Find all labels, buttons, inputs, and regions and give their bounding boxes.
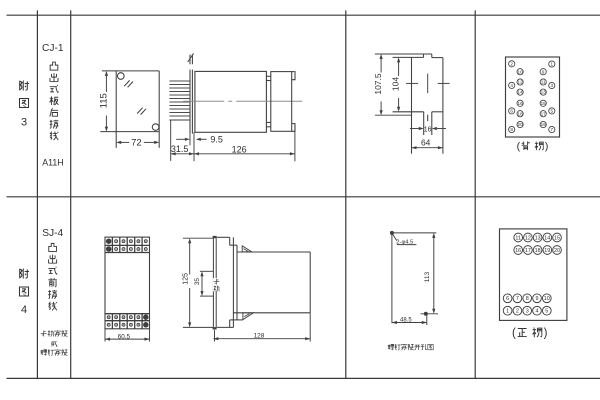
svg-text:CJ-1: CJ-1 — [42, 43, 64, 54]
svg-text:A11H: A11H — [42, 158, 63, 168]
svg-text:15: 15 — [541, 101, 547, 106]
svg-text:6: 6 — [506, 296, 509, 302]
svg-text:64: 64 — [421, 138, 431, 148]
svg-text:35: 35 — [194, 278, 201, 286]
svg-text:9: 9 — [542, 69, 545, 74]
svg-text:16: 16 — [518, 101, 524, 106]
svg-text:13: 13 — [541, 90, 547, 95]
svg-text:7: 7 — [516, 296, 519, 302]
svg-text:2: 2 — [516, 309, 519, 315]
svg-text:): ) — [544, 328, 548, 340]
svg-text:15: 15 — [554, 235, 560, 241]
svg-text:): ) — [545, 141, 549, 153]
svg-text:5: 5 — [551, 109, 554, 114]
svg-text:10: 10 — [544, 296, 550, 302]
svg-text:5: 5 — [545, 309, 548, 315]
svg-text:18: 18 — [535, 248, 541, 254]
svg-text:9.5: 9.5 — [210, 134, 223, 144]
svg-text:12: 12 — [518, 80, 524, 85]
svg-text:17: 17 — [525, 248, 531, 254]
svg-text:SJ-4: SJ-4 — [42, 228, 63, 239]
svg-text:11: 11 — [515, 235, 521, 241]
svg-text:(: ( — [512, 328, 516, 340]
svg-text:12: 12 — [525, 235, 531, 241]
svg-text:2: 2 — [510, 61, 513, 66]
svg-text:(: ( — [517, 141, 521, 153]
svg-text:1: 1 — [506, 309, 509, 315]
svg-text:128: 128 — [254, 333, 265, 340]
svg-text:48.5: 48.5 — [400, 317, 412, 323]
svg-text:8: 8 — [510, 127, 513, 132]
svg-text:7: 7 — [551, 127, 554, 132]
svg-text:107.5: 107.5 — [373, 73, 383, 95]
svg-text:4: 4 — [536, 309, 539, 315]
svg-text:2-φ4.5: 2-φ4.5 — [396, 240, 413, 246]
svg-text:9: 9 — [536, 296, 539, 302]
svg-text:4: 4 — [510, 83, 513, 88]
svg-text:13: 13 — [535, 235, 541, 241]
svg-text:60.5: 60.5 — [118, 333, 131, 340]
svg-text:113: 113 — [424, 271, 431, 282]
svg-text:16: 16 — [424, 126, 432, 133]
svg-text:115: 115 — [98, 93, 109, 108]
svg-text:20: 20 — [554, 248, 560, 254]
svg-text:14: 14 — [544, 235, 550, 241]
svg-text:17: 17 — [541, 111, 547, 116]
svg-text:3: 3 — [551, 83, 554, 88]
svg-text:16: 16 — [515, 248, 521, 254]
svg-text:10: 10 — [518, 69, 524, 74]
svg-text:31.5: 31.5 — [171, 144, 189, 154]
svg-text:20: 20 — [518, 122, 524, 127]
svg-text:125: 125 — [183, 273, 190, 285]
svg-text:11: 11 — [541, 80, 546, 85]
svg-text:104: 104 — [391, 77, 401, 91]
svg-text:14: 14 — [518, 90, 524, 95]
svg-text:6: 6 — [510, 109, 513, 114]
svg-text:3: 3 — [526, 309, 529, 315]
svg-text:126: 126 — [232, 145, 247, 155]
svg-text:1: 1 — [551, 62, 554, 67]
svg-text:72: 72 — [131, 138, 142, 149]
svg-text:18: 18 — [518, 111, 524, 116]
svg-text:19: 19 — [541, 122, 547, 127]
svg-text:8: 8 — [526, 296, 529, 302]
svg-text:19: 19 — [544, 248, 550, 254]
svg-text:4: 4 — [21, 304, 27, 316]
svg-text:3: 3 — [21, 117, 27, 129]
